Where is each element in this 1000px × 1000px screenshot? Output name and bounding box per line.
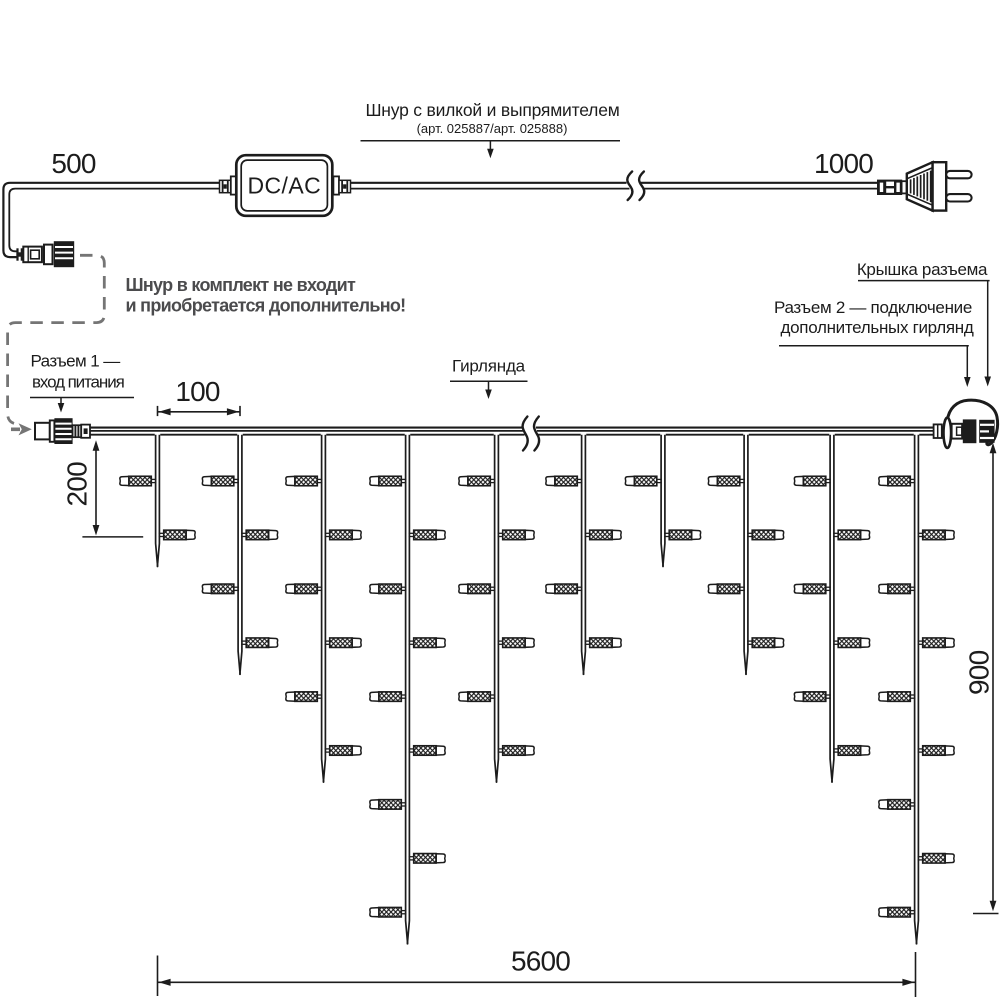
svg-text:5600: 5600 (511, 945, 570, 976)
svg-text:200: 200 (61, 462, 92, 507)
svg-text:Разъем 2 — подключение: Разъем 2 — подключение (774, 298, 972, 317)
svg-text:Крышка разъема: Крышка разъема (857, 260, 988, 279)
svg-text:DC/AC: DC/AC (248, 173, 322, 199)
svg-text:900: 900 (963, 650, 994, 695)
svg-text:и приобретается дополнительно!: и приобретается дополнительно! (126, 296, 406, 316)
svg-text:вход питания: вход питания (32, 372, 125, 391)
svg-text:Разъем 1 —: Разъем 1 — (31, 351, 121, 370)
svg-text:100: 100 (175, 376, 220, 407)
svg-text:Шнур в комплект не входит: Шнур в комплект не входит (126, 275, 357, 295)
svg-text:Гирлянда: Гирлянда (452, 356, 526, 375)
svg-text:Шнур с вилкой и выпрямителем: Шнур с вилкой и выпрямителем (365, 100, 619, 120)
svg-text:1000: 1000 (814, 148, 873, 179)
svg-text:дополнительных гирлянд: дополнительных гирлянд (781, 318, 974, 337)
svg-text:500: 500 (51, 148, 96, 179)
svg-text:(арт. 025887/арт. 025888): (арт. 025887/арт. 025888) (417, 121, 568, 136)
